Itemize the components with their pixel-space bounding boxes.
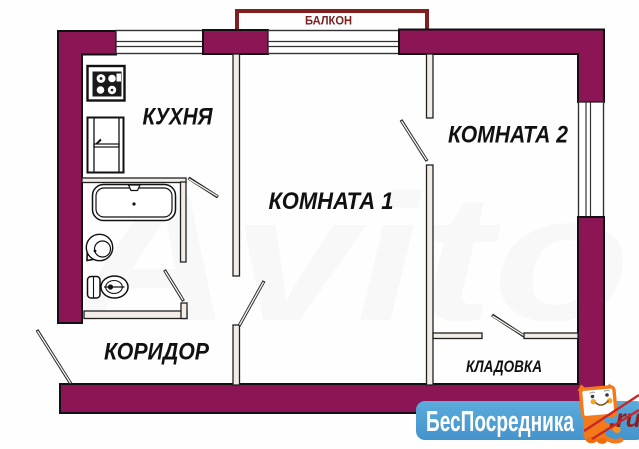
svg-text:КУХНЯ: КУХНЯ [143,104,213,131]
svg-text:БАЛКОН: БАЛКОН [305,16,352,28]
svg-text:КОМНАТА 1: КОМНАТА 1 [269,188,394,215]
svg-text:КОРИДОР: КОРИДОР [104,339,210,366]
svg-text:КОМНАТА 2: КОМНАТА 2 [448,122,569,149]
svg-text:КЛАДОВКА: КЛАДОВКА [466,358,542,376]
svg-text:БесПосредника: БесПосредника [426,406,575,438]
